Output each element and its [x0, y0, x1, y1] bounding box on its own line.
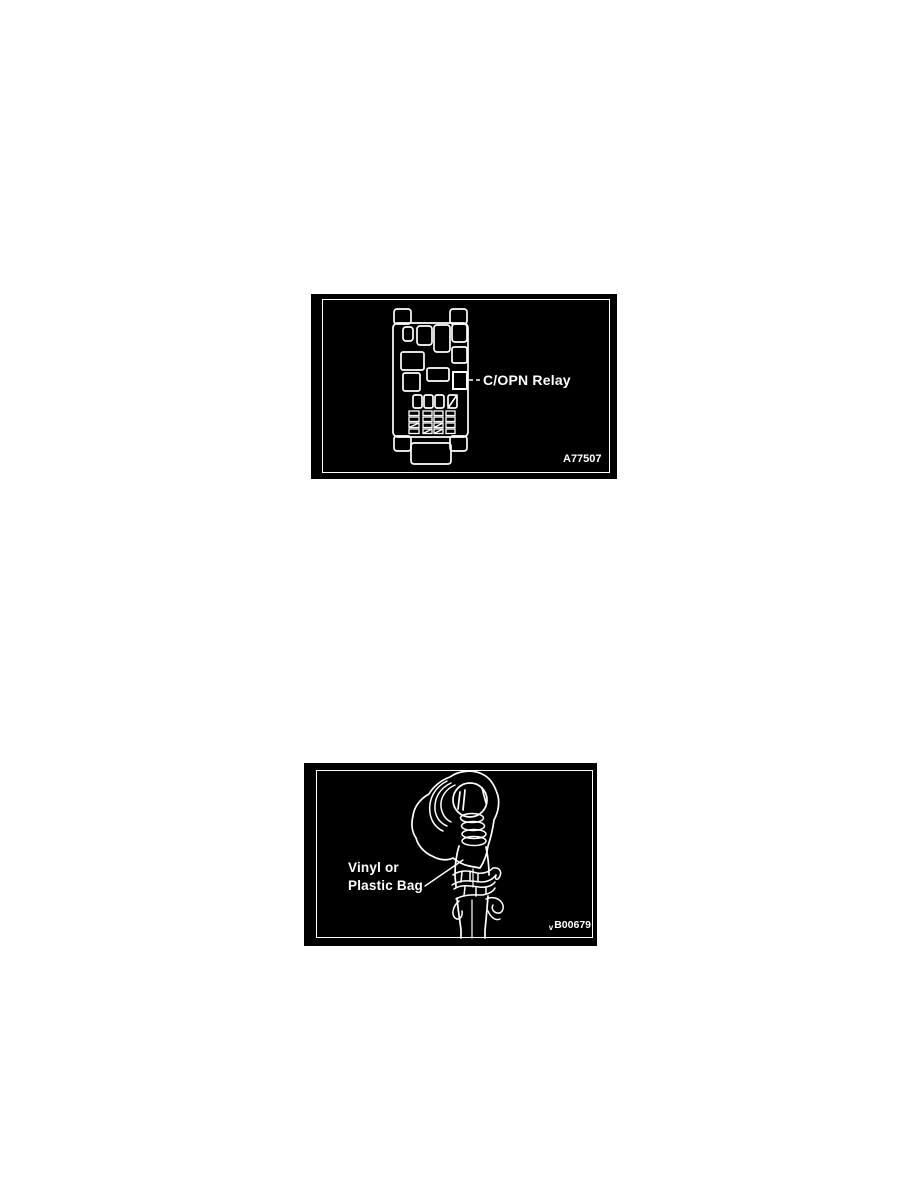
figure2-code: vB00679: [549, 919, 591, 932]
copn-relay-square: [453, 372, 467, 389]
relay-box-outline: [393, 309, 468, 464]
fuse-grid: [409, 411, 455, 434]
figure2-code-value: B00679: [554, 919, 591, 931]
callout-vinyl-line1: Vinyl or: [348, 861, 399, 875]
callout-copn-relay: C/OPN Relay: [483, 373, 571, 387]
figure2-code-prefix: v: [549, 923, 553, 932]
tape-wraps: [452, 868, 501, 899]
figure-relay-box: C/OPN Relay A77507: [311, 294, 617, 479]
callout-vinyl-line2: Plastic Bag: [348, 879, 423, 893]
relay-box-drawing: [311, 294, 617, 479]
figure-shaft-bag: Vinyl or Plastic Bag vB00679: [304, 763, 597, 946]
bag-outline: [412, 771, 499, 868]
shaft-neck-ribs: [461, 814, 487, 846]
bag-flaps: [453, 898, 503, 920]
figure1-code: A77507: [563, 453, 602, 465]
